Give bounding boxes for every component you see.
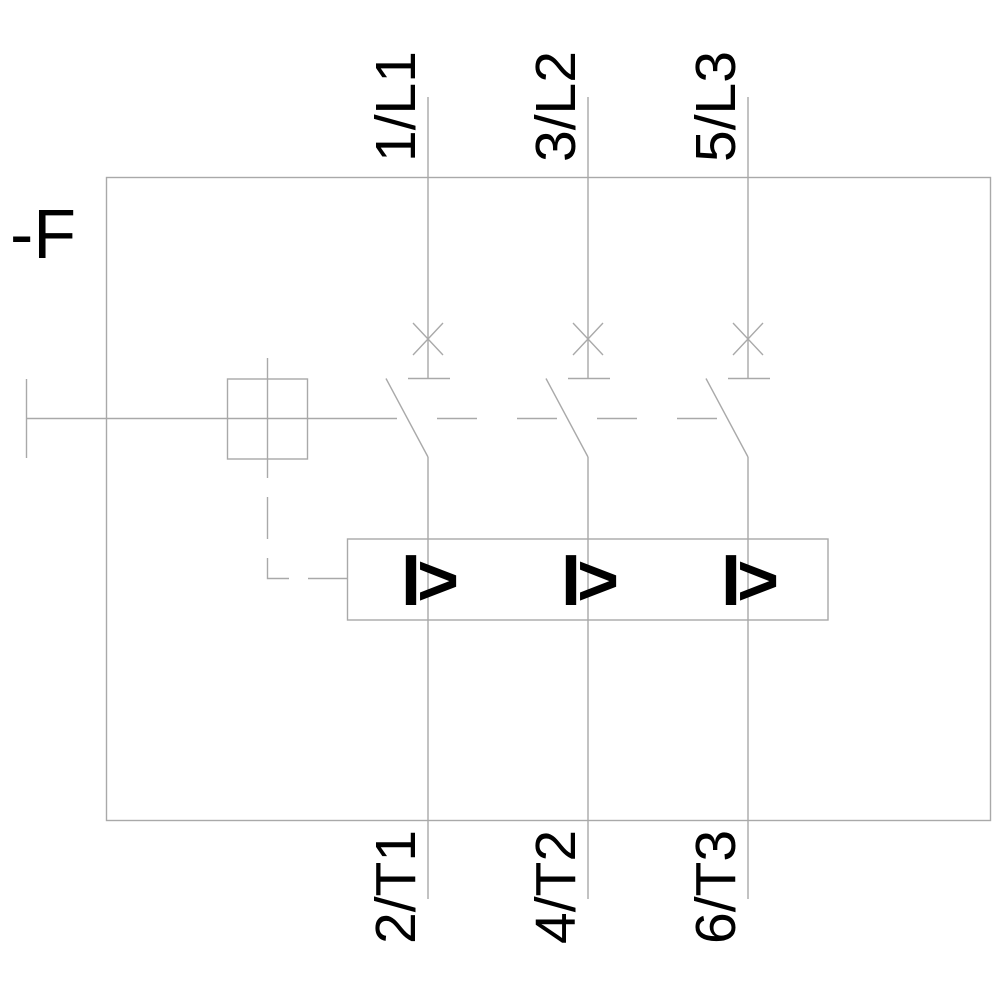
- device-designator-label: -F: [10, 195, 76, 273]
- pole-2-contact-blade: [546, 379, 588, 458]
- terminal-label-1L1: 1/L1: [364, 51, 428, 162]
- breaker-schematic: -F 1/L1 3/L2 5/L3 2/T1 4/T2 6/T3 I> I> I…: [0, 0, 1000, 1000]
- pole-3: [706, 97, 770, 899]
- pole-1-contact-blade: [386, 379, 428, 458]
- schematic-canvas: -F 1/L1 3/L2 5/L3 2/T1 4/T2 6/T3 I> I> I…: [0, 0, 1000, 1000]
- overcurrent-symbol-pole-2: I>: [561, 541, 617, 621]
- pole-3-contact-blade: [706, 379, 748, 458]
- trip-linkage-dashed-line: [268, 478, 348, 579]
- pole-2: [546, 97, 610, 899]
- pole-1: [386, 97, 450, 899]
- terminal-label-3L2: 3/L2: [524, 51, 588, 162]
- terminal-label-2T1: 2/T1: [364, 830, 428, 944]
- terminal-label-4T2: 4/T2: [524, 830, 588, 944]
- device-outline-box: [107, 178, 991, 821]
- terminal-label-6T3: 6/T3: [684, 830, 748, 944]
- terminal-label-5L3: 5/L3: [684, 51, 748, 162]
- manual-actuator: [27, 358, 729, 579]
- overcurrent-symbol-pole-3: I>: [721, 541, 777, 621]
- overcurrent-symbol-pole-1: I>: [401, 541, 457, 621]
